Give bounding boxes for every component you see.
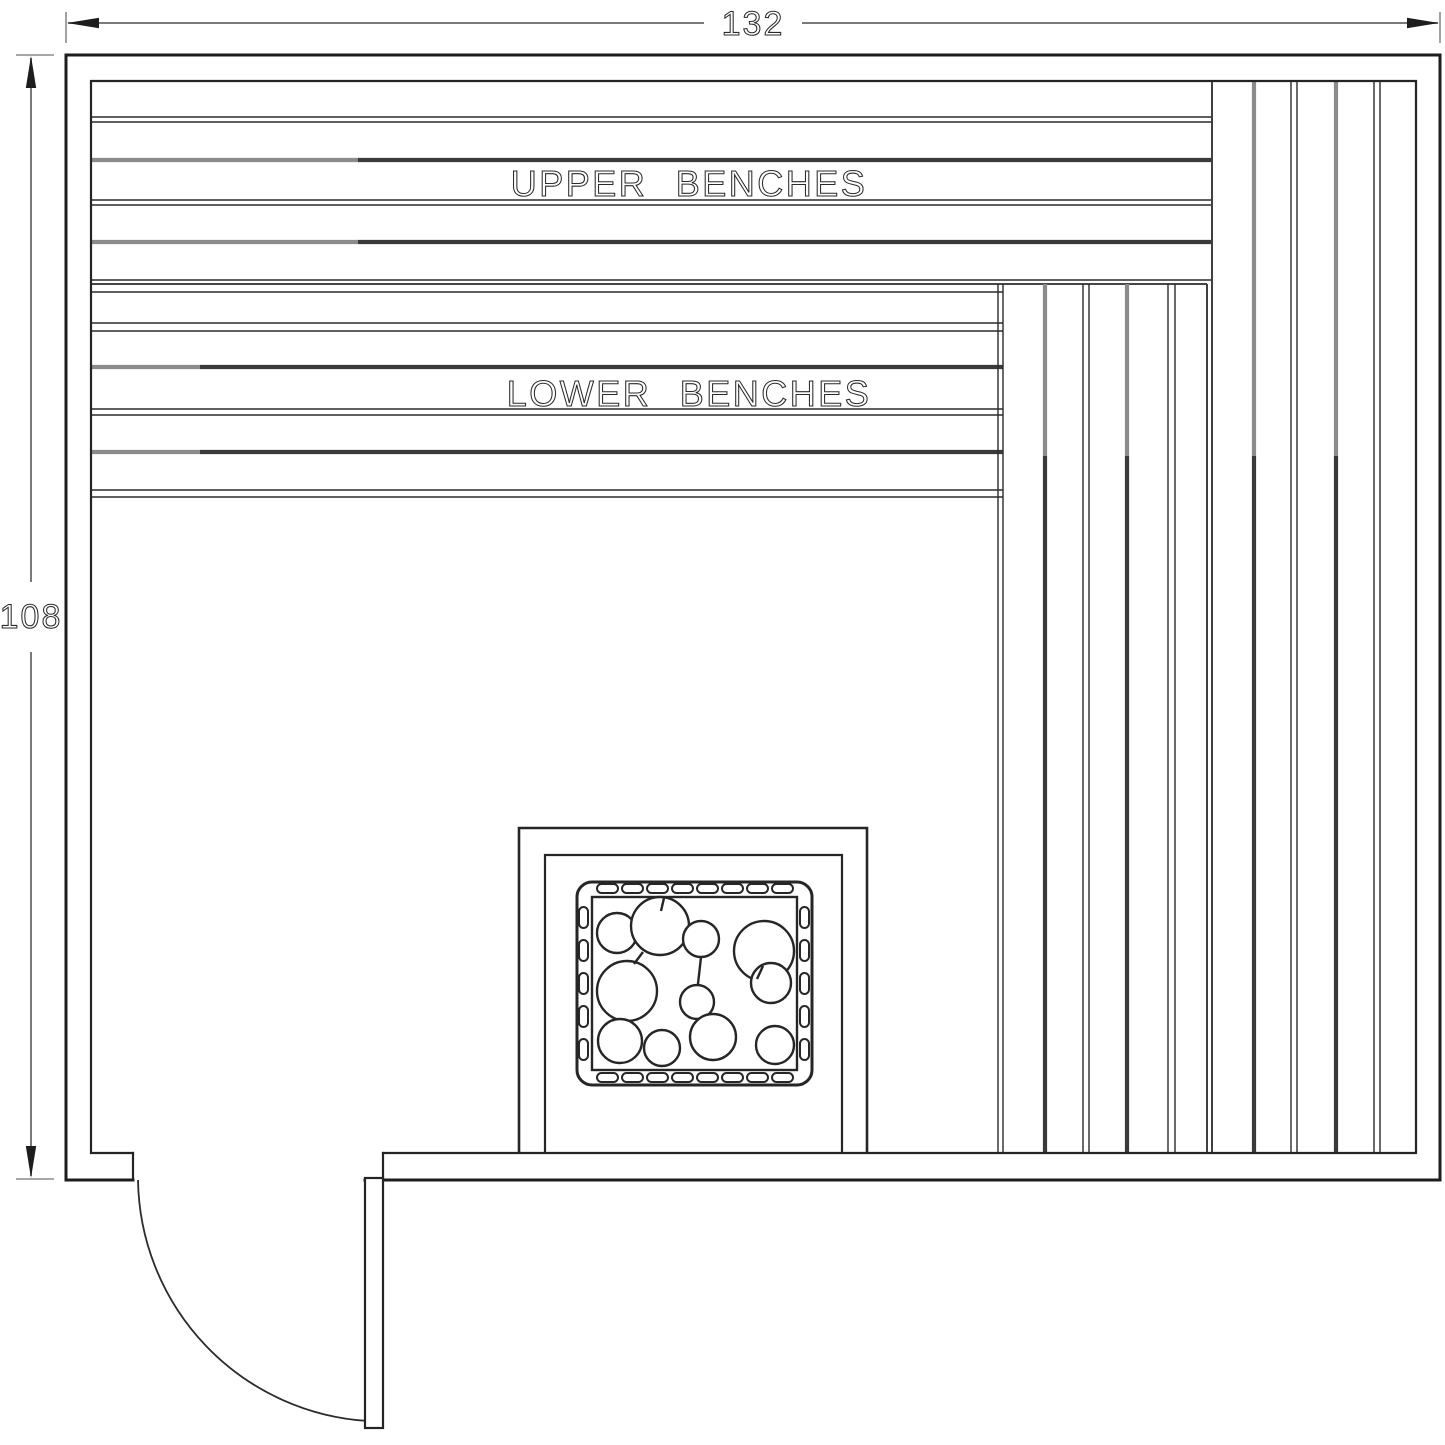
stone	[598, 1019, 642, 1063]
heater-element	[597, 1073, 618, 1082]
heater-element	[672, 1073, 693, 1082]
heater-element	[747, 1073, 768, 1082]
stone	[690, 1014, 736, 1060]
heater-element	[800, 940, 809, 961]
heater-element	[800, 1006, 809, 1027]
right-planks-corner-section	[1212, 81, 1380, 1153]
sauna-floor-plan: UPPER BENCHES LOWER BENCHES	[0, 0, 1445, 1445]
lower-benches: LOWER BENCHES	[91, 292, 1003, 497]
lower-benches-label: LOWER BENCHES	[507, 373, 872, 414]
door	[138, 1178, 383, 1428]
width-dimension-label: 132	[722, 5, 785, 43]
dimension-arrow-left-icon	[67, 18, 99, 28]
upper-benches-label: UPPER BENCHES	[511, 163, 868, 204]
heater-element	[579, 1006, 588, 1027]
heater-element	[800, 1039, 809, 1060]
stone	[756, 1026, 794, 1064]
heater-element	[622, 884, 643, 893]
heater-element	[647, 1073, 668, 1082]
stone	[644, 1030, 680, 1066]
heater-element	[579, 907, 588, 928]
right-planks-inner-section	[998, 284, 1207, 1153]
stone	[751, 963, 791, 1003]
sauna-floor-plan-canvas: UPPER BENCHES LOWER BENCHES	[0, 0, 1445, 1445]
heater-element	[597, 884, 618, 893]
heater-element	[722, 1073, 743, 1082]
heater-element	[579, 940, 588, 961]
left-dimension: 108	[0, 55, 62, 1179]
heater-element	[697, 884, 718, 893]
heater-element	[800, 907, 809, 928]
stone	[683, 921, 719, 957]
stone	[631, 897, 689, 955]
heater-element	[697, 1073, 718, 1082]
heater-element	[647, 884, 668, 893]
height-dimension-label: 108	[0, 598, 62, 636]
dimension-arrow-right-icon	[1407, 18, 1439, 28]
dimension-arrow-down-icon	[26, 1146, 36, 1178]
heater-element	[772, 884, 793, 893]
door-swing-arc	[138, 1180, 368, 1421]
heater-element	[722, 884, 743, 893]
heater-assembly	[519, 828, 867, 1153]
heater-element	[772, 1073, 793, 1082]
dimension-arrow-up-icon	[26, 56, 36, 88]
heater-element	[622, 1073, 643, 1082]
heater-element	[579, 973, 588, 994]
heater-element	[800, 973, 809, 994]
heater-element	[672, 884, 693, 893]
upper-benches: UPPER BENCHES	[91, 117, 1211, 284]
door-leaf	[365, 1178, 383, 1428]
heater-element	[579, 1039, 588, 1060]
stone	[597, 961, 657, 1021]
top-dimension: 132	[66, 5, 1440, 43]
heater-element	[747, 884, 768, 893]
